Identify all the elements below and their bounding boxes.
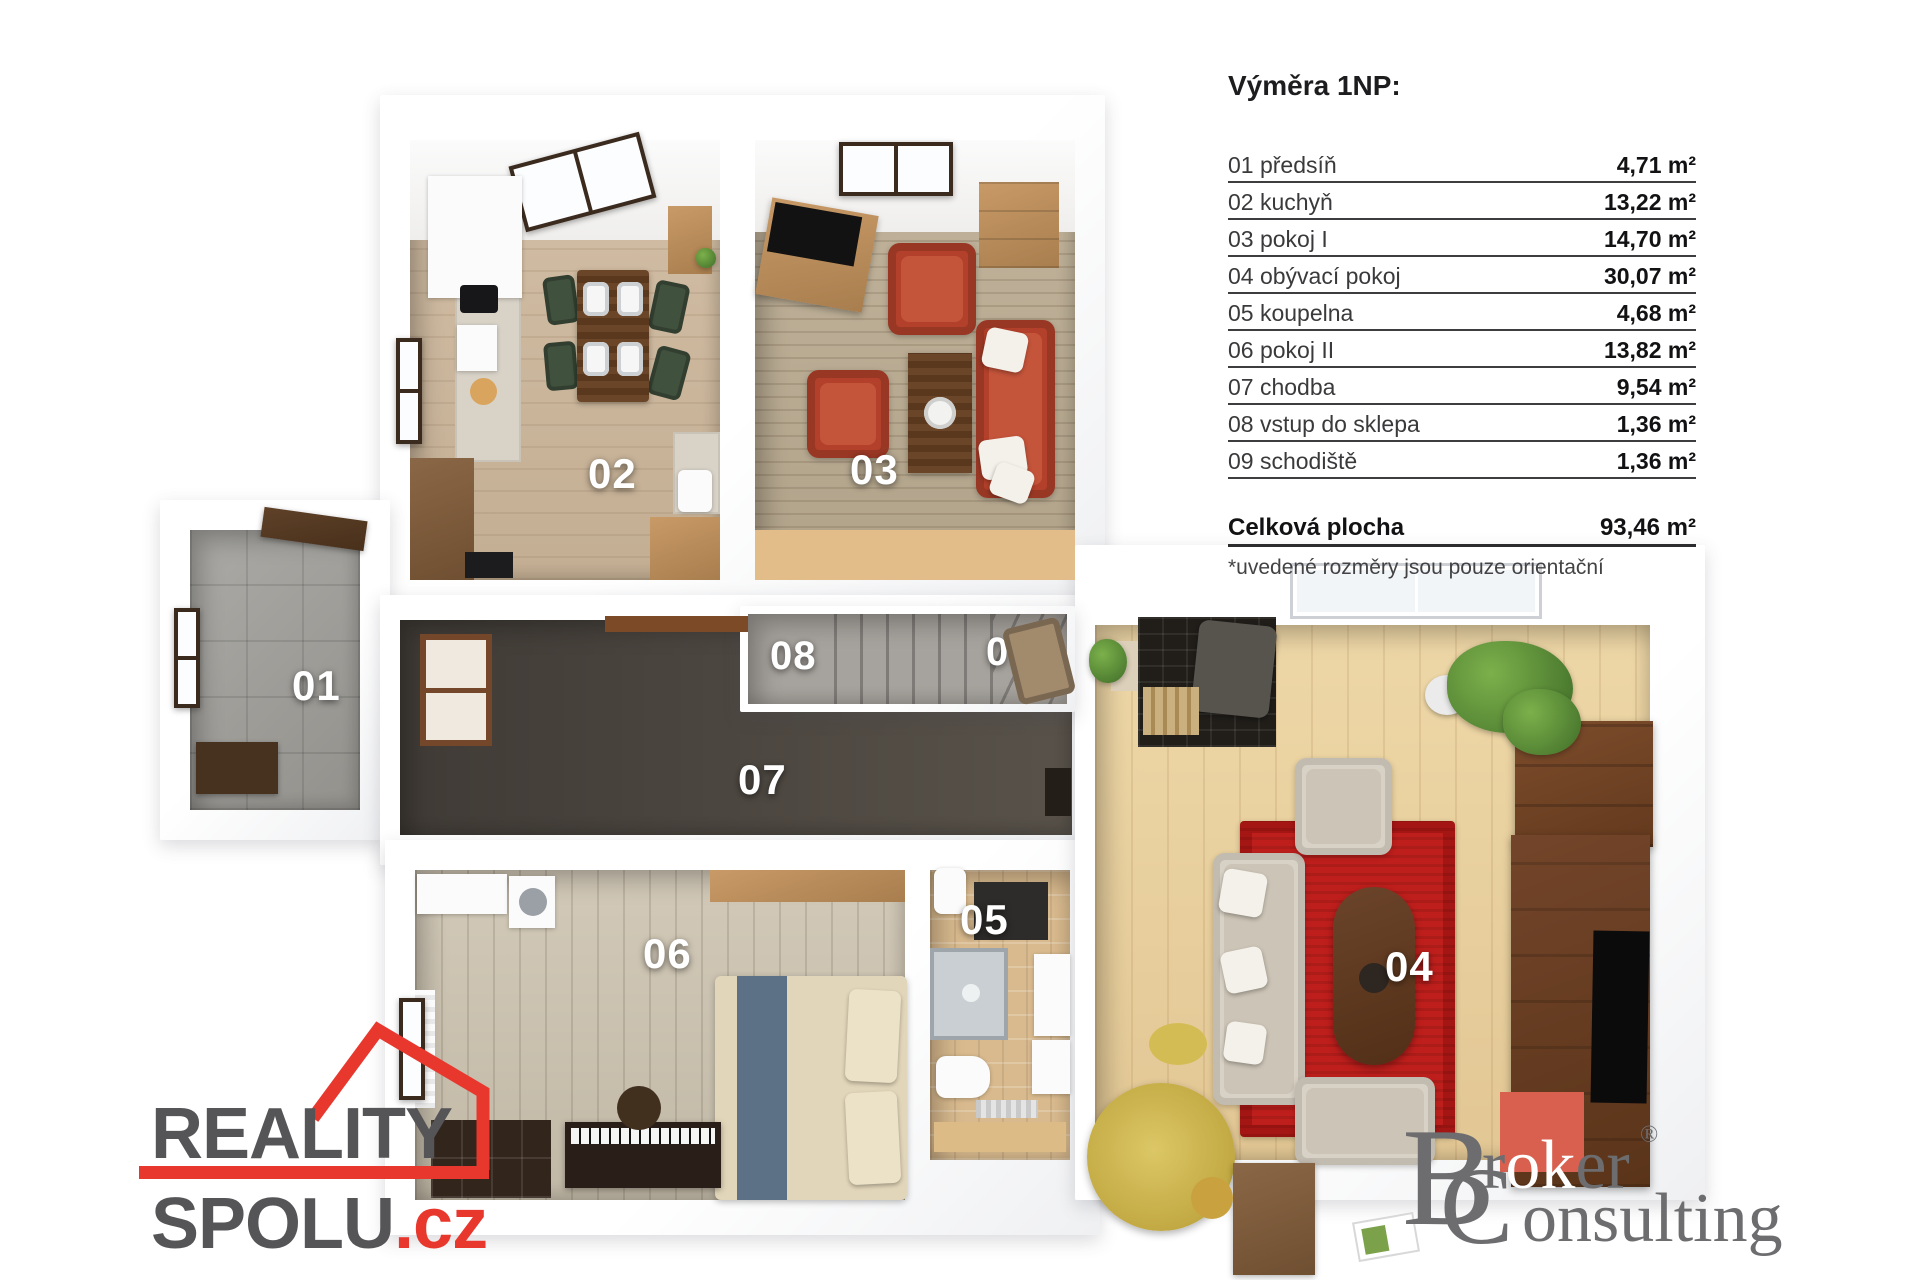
legend-room-area: 4,68 m² bbox=[1617, 300, 1696, 327]
plant-large bbox=[1503, 689, 1581, 755]
tv-stand bbox=[755, 197, 878, 312]
broker-capital-c: C bbox=[1440, 1151, 1513, 1261]
realityspolu-spolu: SPOLU bbox=[151, 1184, 394, 1264]
armchair-beige bbox=[1295, 758, 1392, 855]
dresser bbox=[979, 182, 1059, 268]
window bbox=[174, 608, 200, 708]
legend-row: 09 schodiště1,36 m² bbox=[1228, 442, 1696, 479]
legend-row: 02 kuchyň13,22 m² bbox=[1228, 183, 1696, 220]
oven bbox=[457, 325, 497, 371]
plant-small bbox=[696, 248, 716, 268]
coffee-table bbox=[908, 353, 972, 473]
radiator bbox=[976, 1100, 1038, 1118]
legend-footnote: *uvedené rozměry jsou pouze orientační bbox=[1228, 556, 1696, 580]
tray bbox=[924, 397, 956, 429]
sideboard bbox=[650, 517, 720, 580]
legend-room-name: 07 chodba bbox=[1228, 374, 1335, 401]
sofa-red bbox=[976, 320, 1055, 498]
dining-chair bbox=[647, 279, 691, 335]
room-label-pokoj-1: 03 bbox=[850, 446, 899, 494]
room-label-predsin: 01 bbox=[292, 662, 341, 710]
firewood-stack bbox=[1143, 687, 1199, 735]
legend-row: 07 chodba9,54 m² bbox=[1228, 368, 1696, 405]
room-pokoj-1: 03 bbox=[755, 140, 1075, 580]
room-predsin: 01 bbox=[190, 530, 360, 810]
broker-word-bottom: onsulting bbox=[1522, 1184, 1783, 1254]
dining-chair bbox=[646, 344, 692, 401]
room-label-pokoj-2: 06 bbox=[643, 930, 692, 978]
legend-row: 06 pokoj II13,82 m² bbox=[1228, 331, 1696, 368]
legend-room-area: 1,36 m² bbox=[1617, 411, 1696, 438]
room-kitchen: 02 bbox=[410, 140, 720, 580]
legend-room-area: 13,22 m² bbox=[1604, 189, 1696, 216]
storage-bench bbox=[1233, 1163, 1315, 1275]
sofa-beige bbox=[1213, 853, 1305, 1105]
legend-room-name: 03 pokoj I bbox=[1228, 226, 1328, 253]
room-label-obyvaci-pokoj: 04 bbox=[1385, 943, 1434, 991]
registered-trademark-icon: ® bbox=[1640, 1122, 1658, 1149]
vanity bbox=[1034, 954, 1070, 1036]
kitchen-tall-cabinets bbox=[428, 176, 522, 298]
stair-treads bbox=[834, 614, 994, 704]
legend-room-area: 4,71 m² bbox=[1617, 152, 1696, 179]
legend-room-area: 14,70 m² bbox=[1604, 226, 1696, 253]
decor-fan bbox=[1191, 1177, 1233, 1219]
coffee-machine bbox=[460, 285, 498, 313]
room-label-koupelna: 05 bbox=[960, 896, 1009, 944]
legend-row: 04 obývací pokoj30,07 m² bbox=[1228, 257, 1696, 294]
washing-machine bbox=[509, 876, 555, 928]
armchair-red bbox=[807, 370, 889, 458]
legend-total-value: 93,46 m² bbox=[1600, 514, 1696, 542]
wood-stove bbox=[1190, 619, 1277, 719]
legend-room-area: 30,07 m² bbox=[1604, 263, 1696, 290]
legend-room-name: 08 vstup do sklepa bbox=[1228, 411, 1420, 438]
wall-window-frame bbox=[420, 634, 492, 746]
legend-room-name: 09 schodiště bbox=[1228, 448, 1357, 475]
realityspolu-logo: REALITY SPOLU.cz bbox=[135, 1020, 655, 1280]
wardrobe-sideboard bbox=[755, 530, 1075, 580]
room-koupelna: 05 bbox=[930, 870, 1070, 1160]
room-label-chodba: 07 bbox=[738, 756, 787, 804]
legend-room-name: 01 předsíň bbox=[1228, 152, 1337, 179]
armchair-red bbox=[888, 243, 976, 335]
legend-total-label: Celková plocha bbox=[1228, 514, 1404, 542]
legend-room-name: 06 pokoj II bbox=[1228, 337, 1334, 364]
kitchen-sink bbox=[678, 470, 712, 512]
side-table bbox=[1045, 768, 1071, 816]
bed-runner bbox=[737, 976, 787, 1200]
room-label-sklep: 08 bbox=[770, 634, 817, 679]
legend-room-name: 02 kuchyň bbox=[1228, 189, 1333, 216]
broker-consulting-logo: B roker ® C onsulting bbox=[1382, 1078, 1852, 1278]
dining-table bbox=[577, 270, 649, 402]
bed-headboard-shelf bbox=[710, 870, 905, 902]
legend-room-area: 1,36 m² bbox=[1617, 448, 1696, 475]
realityspolu-wordmark-line1: REALITY bbox=[151, 1093, 452, 1175]
pouf bbox=[1149, 1023, 1207, 1065]
room-label-kitchen: 02 bbox=[588, 450, 637, 498]
legend-row: 08 vstup do sklepa1,36 m² bbox=[1228, 405, 1696, 442]
realityspolu-wordmark-line2: SPOLU.cz bbox=[151, 1183, 487, 1265]
shower-drain bbox=[962, 984, 980, 1002]
gas-hob bbox=[465, 552, 513, 578]
bread-basket bbox=[470, 378, 497, 405]
dining-chair bbox=[542, 274, 580, 326]
shower-cabin bbox=[930, 948, 1008, 1040]
window bbox=[396, 338, 422, 444]
threshold bbox=[934, 1122, 1066, 1152]
legend-title: Výměra 1NP: bbox=[1228, 70, 1696, 102]
toilet bbox=[936, 1056, 990, 1098]
legend-room-name: 05 koupelna bbox=[1228, 300, 1353, 327]
dining-chair bbox=[543, 341, 579, 392]
cabinet-white bbox=[417, 874, 507, 914]
realityspolu-tld: .cz bbox=[394, 1184, 487, 1264]
dryer bbox=[1032, 1040, 1070, 1094]
tv bbox=[767, 202, 862, 267]
legend-room-area: 13,82 m² bbox=[1604, 337, 1696, 364]
legend-room-name: 04 obývací pokoj bbox=[1228, 263, 1401, 290]
console-desk bbox=[196, 742, 278, 794]
legend-total-row: Celková plocha93,46 m² bbox=[1228, 505, 1696, 547]
plant bbox=[1089, 639, 1127, 683]
washer-door bbox=[519, 888, 547, 916]
legend-panel: Výměra 1NP: 01 předsíň4,71 m² 02 kuchyň1… bbox=[1228, 70, 1696, 580]
legend-room-area: 9,54 m² bbox=[1617, 374, 1696, 401]
legend-row: 05 koupelna4,68 m² bbox=[1228, 294, 1696, 331]
legend-row: 03 pokoj I14,70 m² bbox=[1228, 220, 1696, 257]
legend-row: 01 předsíň4,71 m² bbox=[1228, 146, 1696, 183]
double-bed bbox=[715, 976, 907, 1200]
window bbox=[839, 142, 953, 196]
